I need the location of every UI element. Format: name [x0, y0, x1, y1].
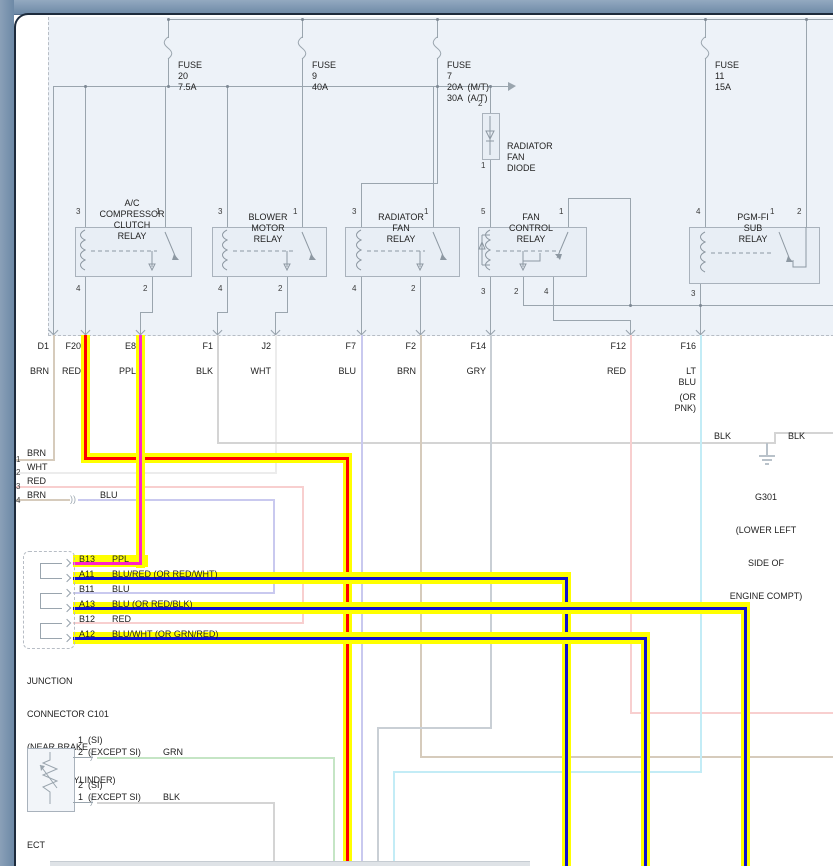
wire-color: BRN	[19, 366, 49, 377]
fuse-11-label: FUSE1115A	[715, 38, 739, 93]
wire-color: WHT	[27, 462, 48, 473]
relay-label-radfan: RADIATORFANRELAY	[341, 190, 461, 245]
wire-color: RED	[51, 366, 81, 377]
diode-icon	[482, 113, 498, 158]
wire-color: RED	[592, 366, 626, 377]
window-left-edge	[0, 0, 14, 866]
fuse-icon	[431, 37, 443, 59]
connector-id: F2	[386, 341, 416, 352]
relay-label-fanctrl: FANCONTROLRELAY	[471, 190, 591, 245]
wire-color: PPL	[106, 366, 136, 377]
next-component-edge	[50, 861, 530, 866]
connector-id: F14	[452, 341, 486, 352]
wire-color: BLU/RED (OR RED/WHT)	[112, 569, 218, 580]
connector-id: E8	[106, 341, 136, 352]
wire-top-bus	[168, 19, 833, 20]
wire-color: BLK	[183, 366, 213, 377]
connector-id: D1	[19, 341, 49, 352]
wire-color: BLK	[163, 792, 180, 803]
fuse-20-label: FUSE207.5A	[178, 38, 202, 93]
relay-label-blower: BLOWERMOTORRELAY	[208, 190, 328, 245]
wire-color: BLU (OR RED/BLK)	[112, 599, 193, 610]
junction-pin: A12	[79, 629, 95, 640]
connector-id: J2	[241, 341, 271, 352]
connector-id: F16	[662, 341, 696, 352]
fuse-9-label: FUSE940A	[312, 38, 336, 93]
wire-color: BRN	[386, 366, 416, 377]
fuse-7-label: FUSE720A (M/T)30A (A/T)	[447, 38, 489, 104]
ect-pin: 2 (SI)	[78, 780, 103, 791]
ground-g301-label: G301 (LOWER LEFT SIDE OF ENGINE COMPT)	[716, 470, 816, 602]
wire-lower-bus	[523, 305, 833, 306]
wiring-diagram-viewer: FUSE207.5A FUSE940A FUSE720A (M/T)30A (A…	[0, 0, 833, 866]
wire-color: BLU	[326, 366, 356, 377]
relay-label-ac: A/CCOMPRESSORCLUTCHRELAY	[72, 176, 192, 242]
ect-pin: 2 (EXCEPT SI)	[78, 747, 141, 758]
connector-id: F7	[326, 341, 356, 352]
wire-color: GRN	[163, 747, 183, 758]
wire-color: BRN	[27, 448, 46, 459]
wire-color: (OR	[662, 392, 696, 403]
ground-icon	[766, 443, 768, 455]
ect-pin: 1 (SI)	[78, 735, 103, 746]
wire-color: BLU	[100, 490, 118, 501]
fuse-icon	[296, 37, 308, 59]
wire-color: BLK	[788, 431, 805, 442]
radiator-fan-diode-label: RADIATORFANDIODE	[507, 119, 553, 174]
fuse-icon	[162, 37, 174, 59]
wire-color: BLK	[714, 431, 731, 442]
fuse-icon	[699, 37, 711, 59]
junction-pin: A13	[79, 599, 95, 610]
wire-f20-red	[84, 335, 87, 460]
ect-pin: 1 (EXCEPT SI)	[78, 792, 141, 803]
wire-color: PNK)	[662, 403, 696, 414]
wire-color: BLU	[112, 584, 130, 595]
connector-id: F1	[183, 341, 213, 352]
ect-sensor-label: ECT SENSOR 2 (LOWER LEFT SIDE OF RADIATO…	[27, 818, 111, 866]
diode-pin-2: 2	[478, 99, 482, 108]
wire-color: BLU/WHT (OR GRN/RED)	[112, 629, 218, 640]
diode-pin-1: 1	[481, 161, 485, 170]
relay-label-pgmfi: PGM-FISUBRELAY	[693, 190, 813, 245]
wire-e8-ppl	[139, 335, 142, 563]
wire-color: BLU	[662, 377, 696, 388]
junction-pin: B12	[79, 614, 95, 625]
wire-color: LT	[662, 366, 696, 377]
junction-pin: B11	[79, 584, 94, 595]
connector-id: F20	[51, 341, 81, 352]
wire-mid-bus	[53, 86, 510, 87]
connector-id: F12	[592, 341, 626, 352]
wire-color: RED	[112, 614, 131, 625]
wire-color: RED	[27, 476, 46, 487]
thermistor-icon	[27, 748, 73, 810]
wire-color: PPL	[112, 554, 129, 565]
junction-pin: A11	[79, 569, 94, 580]
junction-pin: B13	[79, 554, 95, 565]
wire-color: BRN	[27, 490, 46, 501]
wire-color: GRY	[452, 366, 486, 377]
wire-color: WHT	[241, 366, 271, 377]
